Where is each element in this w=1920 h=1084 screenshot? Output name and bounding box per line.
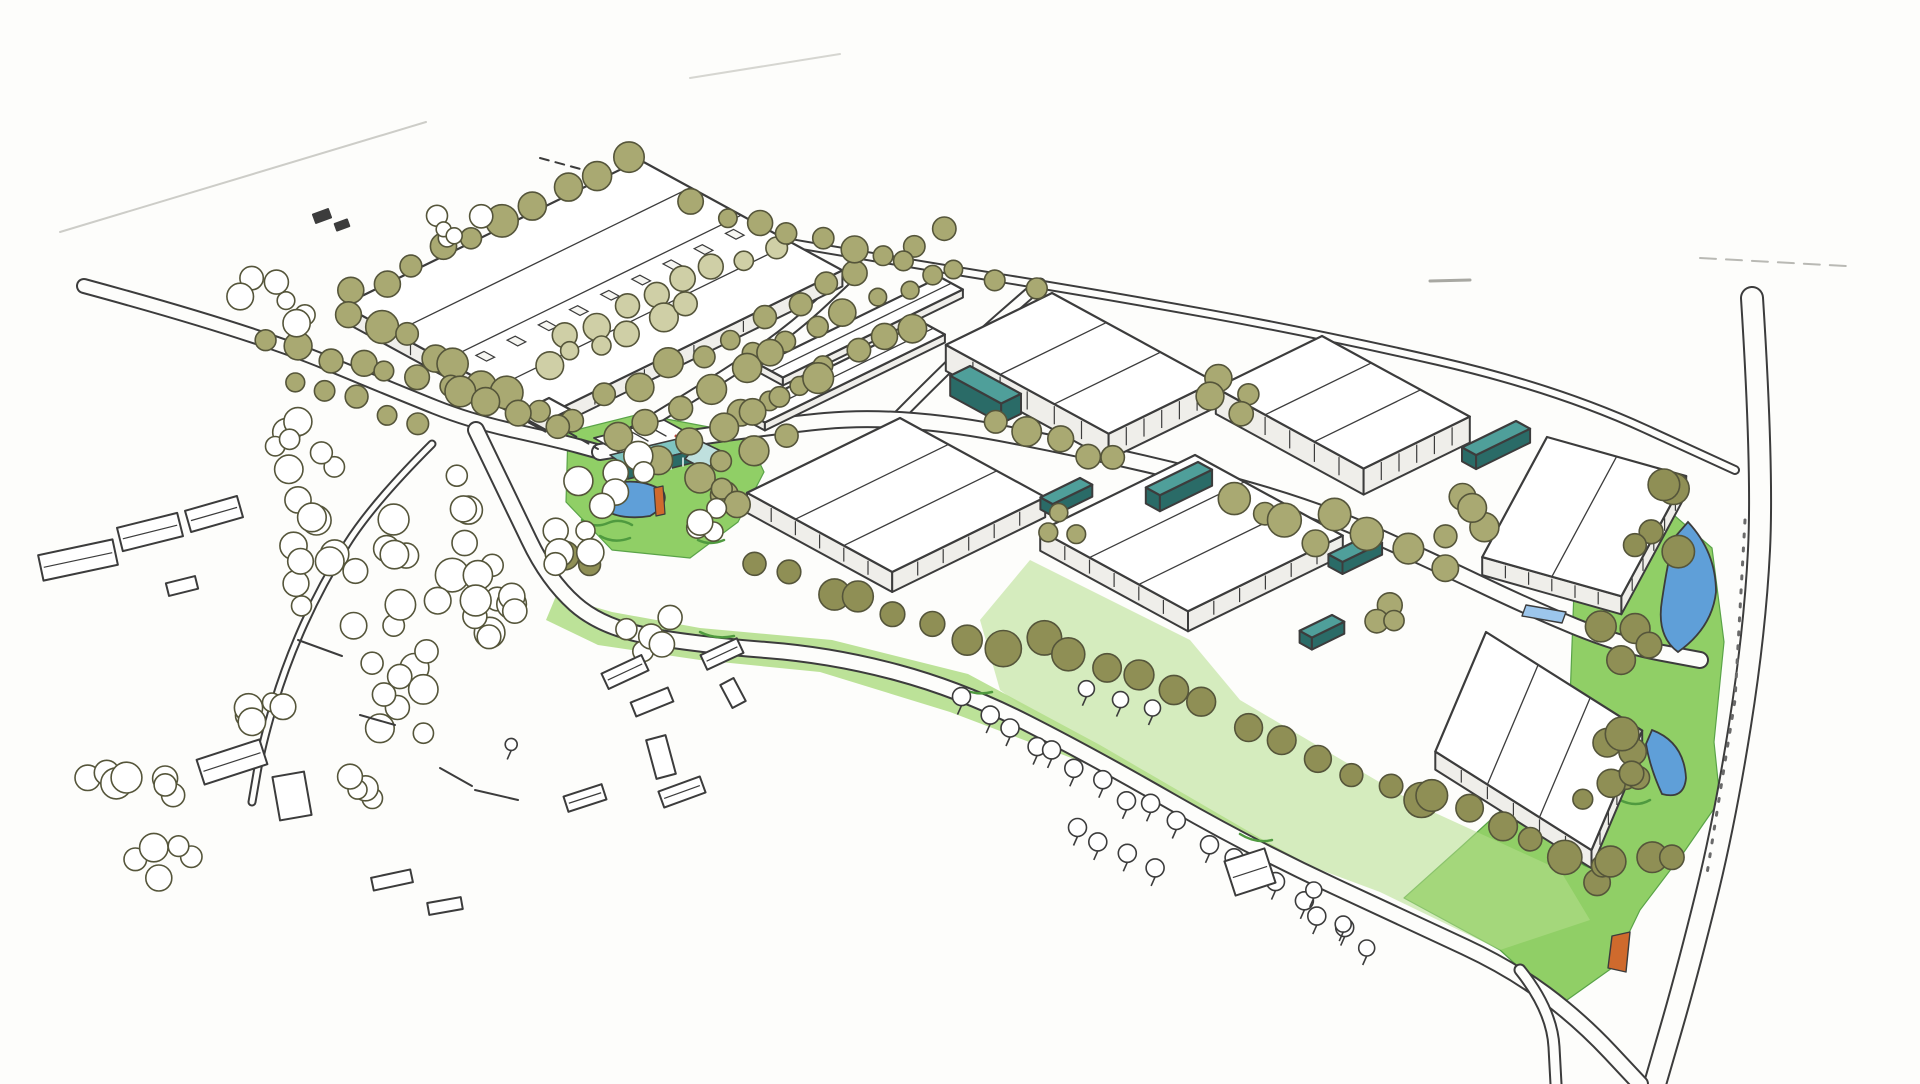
tree-row-tree — [734, 251, 753, 270]
tree-row-tree — [592, 336, 611, 355]
tree-cluster-tree — [1384, 611, 1404, 631]
tree-row-tree — [614, 321, 639, 346]
bush-row-bush — [1065, 759, 1083, 777]
bush-row-bush — [1145, 700, 1161, 716]
tree-row-tree — [984, 270, 1005, 291]
ink-tree-cluster-tree — [340, 613, 366, 639]
tree-row-tree — [1076, 444, 1100, 468]
masterplan-sketch-page — [0, 0, 1920, 1084]
ink-tree-cluster-tree — [275, 455, 303, 483]
ink-tree-cluster-tree — [470, 205, 493, 228]
tree-row-tree — [944, 260, 962, 278]
tree-row-tree — [1379, 774, 1402, 797]
tree-row-tree — [748, 211, 773, 236]
tree-row-tree — [923, 265, 942, 284]
tree-row-tree — [789, 293, 812, 316]
tree-cluster-tree — [1229, 402, 1253, 426]
tree-row-tree — [338, 277, 364, 303]
bush-row-bush — [1142, 794, 1160, 812]
ink-tree-cluster-tree — [280, 429, 300, 449]
ink-tree-cluster-tree — [343, 559, 368, 584]
tree-row-tree — [536, 352, 564, 380]
tree-row-tree — [319, 349, 343, 373]
tree-row-tree — [901, 281, 919, 299]
tree-row-tree — [1318, 498, 1350, 530]
ink-tree-cluster-tree — [380, 540, 408, 568]
ink-tree-cluster-tree — [450, 496, 476, 522]
tree-row-tree — [1101, 446, 1124, 469]
tree-row-tree — [1159, 675, 1188, 704]
ink-tree-cluster-tree — [168, 836, 189, 857]
ink-tree-cluster-tree — [409, 675, 438, 704]
ink-tree-cluster-tree — [424, 587, 451, 614]
tree-row-tree — [985, 631, 1021, 667]
tree-row-tree — [1093, 654, 1121, 682]
tree-row-tree — [1393, 533, 1424, 564]
ink-tree-cluster-tree — [687, 510, 713, 536]
tree-row-tree — [842, 261, 867, 286]
tree-row-tree — [743, 552, 766, 575]
ink-tree-cluster-tree — [140, 833, 168, 861]
tree-row-tree — [678, 189, 703, 214]
ink-tree-cluster-tree — [503, 599, 527, 623]
tree-row-tree — [561, 342, 579, 360]
ink-tree-cluster-tree — [446, 228, 462, 244]
tree-cluster-tree — [1434, 525, 1457, 548]
orange-feature-pillar — [654, 486, 665, 516]
tree-row-tree — [1350, 517, 1383, 550]
ink-tree-cluster-tree — [264, 270, 288, 294]
ink-tree-cluster-tree — [146, 865, 172, 891]
ink-tree-cluster-tree — [452, 530, 477, 555]
tree-row-tree — [829, 299, 856, 326]
tree-row-tree — [880, 602, 905, 627]
bush-row-bush — [1001, 719, 1019, 737]
parking-trees-tree — [803, 363, 834, 394]
tree-row-tree — [873, 246, 893, 266]
ink-tree-cluster-tree — [415, 640, 438, 663]
tree-row-tree — [1305, 746, 1332, 773]
ink-tree-cluster-tree — [576, 521, 595, 540]
parking-trees-tree — [697, 375, 727, 405]
ink-tree-cluster-tree — [658, 605, 682, 629]
tree-row-tree — [314, 381, 334, 401]
ink-tree-cluster-tree — [283, 571, 309, 597]
ink-tree-cluster-tree — [288, 549, 314, 575]
tree-row-tree — [1432, 555, 1458, 581]
parking-trees-tree — [669, 396, 693, 420]
house — [272, 772, 311, 821]
tree-row-tree — [1340, 764, 1363, 787]
tree-cluster-tree — [1607, 646, 1636, 675]
ink-tree-cluster-tree — [298, 503, 327, 532]
tree-row-tree — [396, 323, 418, 345]
tree-cluster-tree — [1573, 789, 1593, 809]
ink-tree-cluster-tree — [616, 619, 637, 640]
tree-row-tree — [670, 266, 695, 291]
tree-row-tree — [1012, 417, 1041, 446]
tree-row-tree — [461, 228, 482, 249]
ink-tree-cluster-tree — [385, 590, 415, 620]
tree-row-tree — [1235, 714, 1263, 742]
parking-trees-tree — [676, 428, 703, 455]
parking-trees-tree — [711, 451, 732, 472]
tree-row-tree — [366, 311, 399, 344]
parking-trees-tree — [775, 424, 798, 447]
ink-tree-cluster-tree — [238, 708, 265, 735]
bush-row-bush — [981, 706, 999, 724]
tree-row-tree — [555, 173, 583, 201]
ink-tree-cluster-tree — [111, 762, 142, 793]
tree-row-tree — [546, 415, 569, 438]
bush-row-bush — [1359, 940, 1375, 956]
bush-row-bush — [1146, 859, 1164, 877]
tree-row-tree — [407, 413, 429, 435]
tree-cluster-tree — [1605, 717, 1639, 751]
parking-trees-tree — [769, 387, 789, 407]
ink-tree-cluster-tree — [590, 493, 615, 518]
tree-row-tree — [472, 388, 500, 416]
masterplan-sketch-drawing — [0, 0, 1920, 1084]
tree-row-tree — [869, 288, 887, 306]
ink-tree-cluster-tree — [277, 292, 295, 310]
tree-row-tree — [377, 406, 396, 425]
tree-row-tree — [1026, 278, 1047, 299]
ink-tree-cluster-tree — [413, 723, 433, 743]
ink-tree-cluster-tree — [315, 547, 344, 576]
tree-row-tree — [1048, 426, 1074, 452]
tree-cluster-tree — [1196, 382, 1224, 410]
parking-trees-tree — [739, 436, 769, 466]
tree-row-tree — [1416, 780, 1448, 812]
tree-cluster-tree — [1636, 632, 1662, 658]
tree-row-tree — [894, 251, 914, 271]
parking-trees-tree — [653, 348, 683, 378]
tree-row-tree — [847, 338, 870, 361]
tree-row-tree — [336, 302, 362, 328]
ink-tree-cluster-tree — [446, 465, 467, 486]
tree-cluster-tree — [1619, 761, 1643, 785]
tree-cluster-tree — [724, 491, 750, 517]
tree-cluster-tree — [1067, 525, 1086, 544]
tree-row-tree — [374, 361, 394, 381]
bush-row-bush — [1113, 692, 1129, 708]
tree-row-tree — [1052, 638, 1085, 671]
tree-row-tree — [505, 400, 531, 426]
ink-tree-cluster-tree — [378, 504, 409, 535]
tree-row-tree — [1268, 503, 1302, 537]
tree-row-tree — [984, 411, 1007, 434]
tree-row-tree — [351, 350, 377, 376]
ink-tree-cluster-tree — [544, 553, 567, 576]
tree-row-tree — [673, 292, 697, 316]
parking-trees-tree — [739, 399, 765, 425]
pencil-mark — [1430, 280, 1470, 281]
ink-tree-cluster-tree — [154, 774, 176, 796]
parking-trees-tree — [710, 413, 739, 442]
tree-cluster-tree — [1595, 846, 1626, 877]
orange-marker — [1608, 932, 1630, 972]
bush-row-bush — [1078, 681, 1094, 697]
tree-row-tree — [1302, 530, 1329, 557]
parking-trees-tree — [685, 463, 715, 493]
ink-tree-cluster-tree — [477, 625, 501, 649]
bush-row-bush — [1306, 882, 1322, 898]
ink-tree-cluster-tree — [338, 764, 363, 789]
parking-trees-tree — [721, 331, 740, 350]
bush-row-bush — [1308, 907, 1326, 925]
tree-row-tree — [815, 272, 837, 294]
ink-tree-cluster-tree — [283, 310, 310, 337]
tree-row-tree — [583, 162, 612, 191]
ink-tree-cluster-tree — [227, 283, 254, 310]
bush-row-bush — [1089, 833, 1107, 851]
bush-row-bush — [1094, 771, 1112, 789]
parking-trees-tree — [693, 346, 715, 368]
parking-trees-tree — [757, 339, 783, 365]
tree-cluster-tree — [1660, 845, 1684, 869]
tree-row-tree — [1456, 794, 1483, 821]
ink-tree-cluster-tree — [292, 596, 312, 616]
tree-row-tree — [518, 192, 546, 220]
bush-row-bush — [1118, 792, 1136, 810]
tree-row-tree — [777, 560, 801, 584]
tree-row-tree — [843, 581, 874, 612]
tree-row-tree — [374, 271, 400, 297]
tree-row-tree — [405, 365, 430, 390]
parking-trees-tree — [626, 373, 654, 401]
bush-row-bush — [1201, 836, 1219, 854]
tree-row-tree — [920, 612, 945, 637]
tree-cluster-tree — [1648, 469, 1680, 501]
tree-row-tree — [286, 373, 305, 392]
ink-tree-cluster-tree — [460, 585, 491, 616]
ink-tree-cluster-tree — [633, 462, 654, 483]
tree-row-tree — [1187, 687, 1216, 716]
ink-tree-cluster-tree — [361, 652, 383, 674]
tree-row-tree — [255, 330, 276, 351]
tree-row-tree — [616, 294, 640, 318]
tree-row-tree — [698, 254, 723, 279]
bush-row-bush — [953, 688, 971, 706]
ink-tree-cluster-tree — [564, 467, 593, 496]
tree-row-tree — [1218, 483, 1250, 515]
tree-cluster-tree — [1585, 611, 1616, 642]
tree-cluster-tree — [1039, 523, 1058, 542]
tree-row-tree — [614, 142, 644, 172]
bush-row-bush — [1335, 916, 1351, 932]
tree-row-tree — [813, 228, 834, 249]
ink-tree-cluster-tree — [270, 694, 296, 720]
tree-row-tree — [345, 385, 368, 408]
bush-row-bush — [1069, 819, 1087, 837]
tree-cluster-tree — [1458, 494, 1487, 523]
tree-row-tree — [807, 316, 828, 337]
parking-trees-tree — [593, 383, 615, 405]
tree-cluster-tree — [1662, 535, 1694, 567]
bush-row-bush — [1167, 812, 1185, 830]
ink-tree-cluster-tree — [649, 632, 674, 657]
tree-row-tree — [529, 401, 551, 423]
tree-row-tree — [1548, 840, 1582, 874]
tree-row-tree — [841, 236, 868, 263]
tree-row-tree — [1124, 660, 1154, 690]
lamp-symbol-bush — [505, 738, 517, 750]
bush-row-bush — [1118, 844, 1136, 862]
tree-cluster-tree — [1624, 534, 1647, 557]
tree-row-tree — [753, 306, 776, 329]
tree-row-tree — [1489, 812, 1518, 841]
ink-tree-cluster-tree — [311, 442, 333, 464]
ink-tree-cluster-tree — [577, 539, 604, 566]
tree-row-tree — [1519, 828, 1542, 851]
ink-tree-cluster-tree — [372, 683, 395, 706]
parking-trees-tree — [632, 410, 658, 436]
tree-row-tree — [776, 223, 797, 244]
tree-row-tree — [1267, 726, 1296, 755]
tree-row-tree — [719, 209, 737, 227]
tree-row-tree — [872, 323, 898, 349]
bush-row-bush — [1043, 741, 1061, 759]
tree-row-tree — [933, 217, 956, 240]
tree-row-tree — [898, 315, 926, 343]
tree-row-tree — [952, 625, 982, 655]
tree-row-tree — [400, 255, 422, 277]
tree-cluster-tree — [1050, 503, 1068, 521]
